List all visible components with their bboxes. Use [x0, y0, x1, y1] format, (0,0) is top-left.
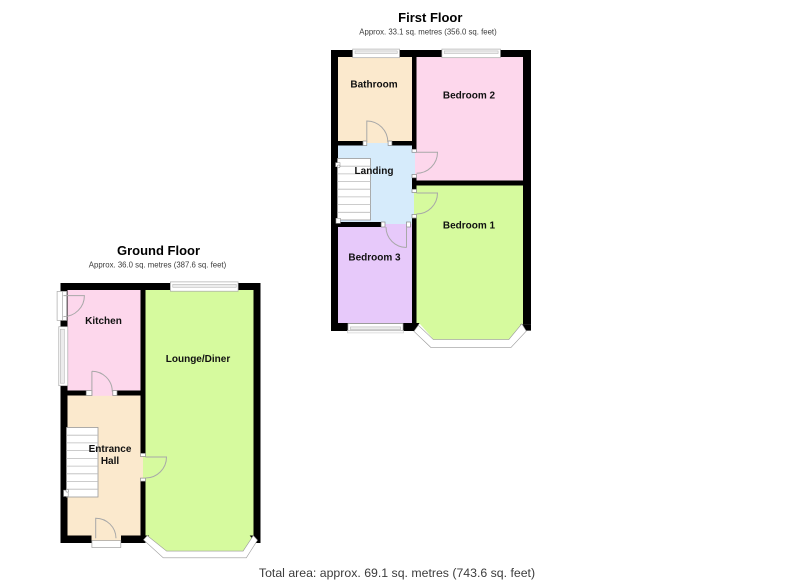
- svg-text:Landing: Landing: [355, 166, 394, 177]
- svg-text:Ground Floor: Ground Floor: [117, 243, 200, 258]
- svg-text:Bedroom 3: Bedroom 3: [348, 253, 401, 264]
- svg-text:Bathroom: Bathroom: [350, 80, 397, 91]
- svg-text:Kitchen: Kitchen: [85, 316, 122, 327]
- svg-text:Approx. 33.1 sq. metres (356.0: Approx. 33.1 sq. metres (356.0 sq. feet): [359, 27, 497, 36]
- svg-text:First Floor: First Floor: [398, 10, 462, 25]
- svg-text:Approx. 36.0 sq. metres (387.6: Approx. 36.0 sq. metres (387.6 sq. feet): [89, 261, 227, 270]
- svg-text:Total area: approx. 69.1 sq. m: Total area: approx. 69.1 sq. metres (743…: [259, 566, 535, 580]
- svg-text:Hall: Hall: [101, 456, 120, 467]
- svg-text:Lounge/Diner: Lounge/Diner: [166, 354, 231, 365]
- svg-text:Bedroom 2: Bedroom 2: [443, 91, 496, 102]
- svg-text:Entrance: Entrance: [89, 444, 132, 455]
- svg-text:Bedroom 1: Bedroom 1: [443, 221, 496, 232]
